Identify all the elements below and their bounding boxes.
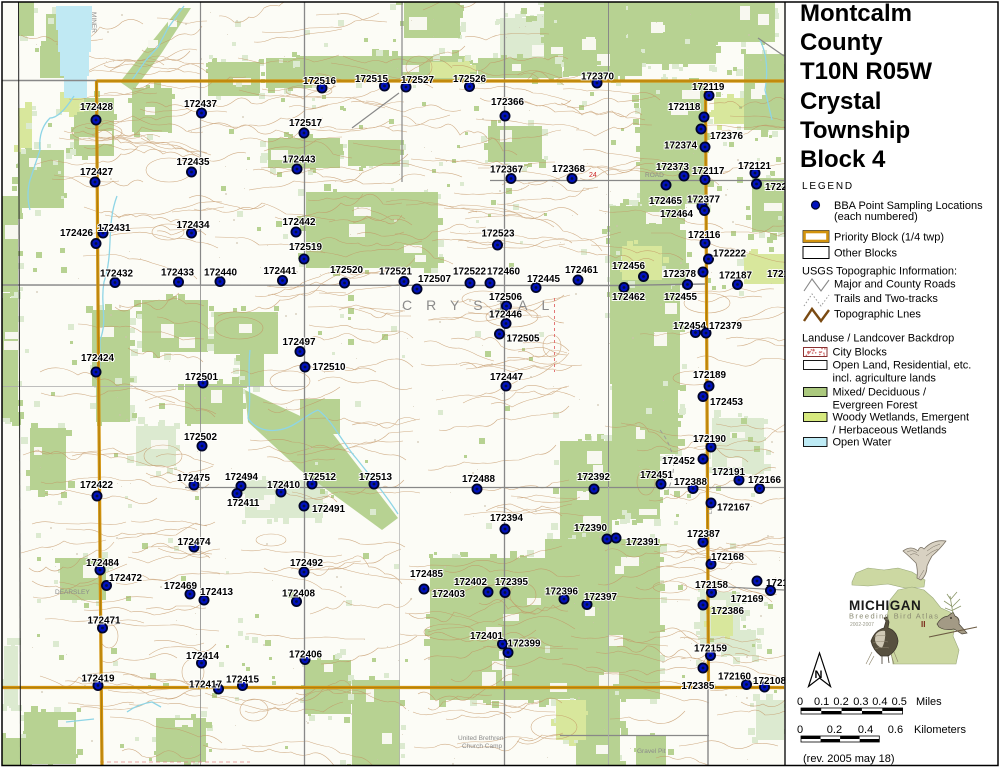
svg-text:172373: 172373	[656, 162, 689, 173]
svg-text:0.5: 0.5	[892, 696, 907, 708]
svg-text:172515: 172515	[355, 74, 388, 85]
svg-text:172385: 172385	[681, 681, 714, 692]
svg-text:172187: 172187	[719, 271, 752, 282]
svg-text:172462: 172462	[612, 292, 645, 303]
svg-text:172485: 172485	[410, 569, 443, 580]
svg-text:172505: 172505	[507, 334, 540, 345]
svg-text:Kilometers: Kilometers	[914, 724, 966, 736]
svg-text:172513: 172513	[359, 472, 392, 483]
svg-text:172492: 172492	[290, 558, 323, 569]
svg-text:172501: 172501	[185, 372, 218, 383]
svg-text:172377: 172377	[687, 195, 720, 206]
svg-text:172391: 172391	[626, 537, 659, 548]
svg-text:0.3: 0.3	[853, 696, 868, 708]
svg-text:Mixed/ Deciduous /: Mixed/ Deciduous /	[833, 387, 927, 399]
svg-text:USGS Topographic Information:: USGS Topographic Information:	[802, 266, 957, 278]
svg-text:172158: 172158	[695, 580, 728, 591]
svg-text:172526: 172526	[453, 74, 486, 85]
svg-text:172388: 172388	[674, 477, 707, 488]
svg-text:172437: 172437	[184, 99, 217, 110]
svg-text:172116: 172116	[688, 230, 721, 241]
svg-text:172368: 172368	[552, 164, 585, 175]
svg-text:United Brethren: United Brethren	[458, 735, 504, 742]
svg-text:172433: 172433	[161, 268, 194, 279]
svg-text:Miles: Miles	[916, 696, 942, 708]
svg-text:172516: 172516	[303, 76, 336, 87]
svg-text:172520: 172520	[330, 265, 363, 276]
svg-text:N: N	[815, 669, 823, 681]
svg-text:172414: 172414	[186, 651, 219, 662]
svg-text:Open Land, Residential, etc.: Open Land, Residential, etc.	[833, 360, 972, 372]
svg-text:172166: 172166	[748, 475, 781, 486]
svg-text:172469: 172469	[164, 581, 197, 592]
svg-text:172160: 172160	[718, 672, 751, 683]
svg-text:172422: 172422	[80, 480, 113, 491]
svg-text:172527: 172527	[401, 75, 434, 86]
svg-text:Priority Block (1/4 twp): Priority Block (1/4 twp)	[834, 232, 944, 244]
svg-text:Montcalm: Montcalm	[800, 0, 912, 27]
svg-text:172167: 172167	[717, 503, 750, 514]
svg-text:Woody Wetlands, Emergent: Woody Wetlands, Emergent	[833, 412, 970, 424]
svg-text:172522: 172522	[453, 267, 486, 278]
svg-text:172410: 172410	[267, 480, 300, 491]
svg-text:0: 0	[797, 724, 803, 736]
svg-text:172189: 172189	[693, 370, 726, 381]
svg-text:0.2: 0.2	[833, 696, 848, 708]
svg-text:172451: 172451	[640, 470, 673, 481]
svg-text:172386: 172386	[711, 606, 744, 617]
svg-text:172465: 172465	[649, 196, 682, 207]
svg-text:Landuse / Landcover Backdrop: Landuse / Landcover Backdrop	[802, 333, 954, 345]
svg-text:Topographic Lnes: Topographic Lnes	[834, 309, 921, 321]
svg-text:172399: 172399	[508, 639, 541, 650]
svg-text:0.2: 0.2	[827, 724, 842, 736]
svg-text:172434: 172434	[177, 220, 210, 231]
svg-text:172521: 172521	[379, 267, 412, 278]
svg-text:172517: 172517	[289, 118, 322, 129]
svg-text:172456: 172456	[612, 261, 645, 272]
svg-text:172395: 172395	[495, 577, 528, 588]
svg-text:172447: 172447	[490, 372, 523, 383]
svg-text:172403: 172403	[432, 589, 465, 600]
svg-text:172461: 172461	[565, 265, 598, 276]
svg-text:Other Blocks: Other Blocks	[834, 248, 897, 260]
svg-text:172464: 172464	[660, 209, 693, 220]
svg-text:0: 0	[797, 696, 803, 708]
svg-text:172494: 172494	[225, 472, 258, 483]
svg-text:DEARSLEY: DEARSLEY	[55, 589, 90, 596]
svg-text:172507: 172507	[418, 274, 451, 285]
svg-text:172442: 172442	[283, 217, 316, 228]
svg-text:172408: 172408	[282, 589, 315, 600]
svg-text:172191: 172191	[712, 467, 745, 478]
svg-text:172471: 172471	[88, 616, 121, 627]
svg-text:172121: 172121	[738, 161, 771, 172]
svg-text:incl. agriculture lands: incl. agriculture lands	[833, 373, 937, 385]
svg-text:Church Camp: Church Camp	[462, 743, 502, 750]
svg-text:172390: 172390	[574, 523, 607, 534]
svg-text:172406: 172406	[289, 650, 322, 661]
svg-text:Township: Township	[800, 117, 910, 144]
svg-text:Trails and Two-tracks: Trails and Two-tracks	[834, 293, 938, 305]
svg-text:172387: 172387	[687, 529, 720, 540]
svg-text:172396: 172396	[545, 587, 578, 598]
svg-text:172118: 172118	[668, 102, 701, 113]
svg-text:172445: 172445	[527, 274, 560, 285]
svg-text:172374: 172374	[664, 141, 697, 152]
svg-text:Open Water: Open Water	[833, 437, 892, 449]
svg-text:172484: 172484	[86, 558, 119, 569]
svg-text:Crystal: Crystal	[800, 88, 881, 115]
svg-text:172428: 172428	[80, 102, 113, 113]
svg-text:Gravel Pit: Gravel Pit	[637, 748, 666, 755]
svg-text:0.1: 0.1	[814, 696, 829, 708]
svg-text:172497: 172497	[283, 337, 316, 348]
svg-text:172169: 172169	[731, 594, 764, 605]
svg-text:172413: 172413	[200, 587, 233, 598]
svg-text:172502: 172502	[184, 432, 217, 443]
svg-text:172370: 172370	[581, 72, 614, 83]
svg-text:172402: 172402	[454, 577, 487, 588]
svg-text:172367: 172367	[490, 165, 523, 176]
svg-text:172446: 172446	[489, 310, 522, 321]
svg-text:0.4: 0.4	[872, 696, 887, 708]
svg-text:172491: 172491	[312, 504, 345, 515]
svg-text:Breeding Bird Atlas: Breeding Bird Atlas	[849, 612, 939, 621]
svg-text:172426: 172426	[60, 228, 93, 239]
svg-text:172460: 172460	[487, 267, 520, 278]
svg-text:172475: 172475	[177, 473, 210, 484]
svg-text:0.6: 0.6	[888, 724, 903, 736]
svg-text:172108: 172108	[753, 676, 786, 687]
svg-text:172117: 172117	[692, 166, 725, 177]
svg-text:Major and County Roads: Major and County Roads	[834, 279, 956, 291]
svg-text:0.4: 0.4	[858, 724, 873, 736]
svg-text:172519: 172519	[289, 242, 322, 253]
svg-text:172510: 172510	[313, 362, 346, 373]
svg-text:172523: 172523	[482, 229, 515, 240]
svg-text:172376: 172376	[710, 131, 743, 142]
svg-text:172431: 172431	[98, 223, 131, 234]
svg-text:172455: 172455	[664, 292, 697, 303]
svg-text:ROAD: ROAD	[645, 172, 664, 179]
svg-text:172366: 172366	[491, 97, 524, 108]
svg-text:172378: 172378	[663, 269, 696, 280]
svg-text:172222: 172222	[713, 249, 746, 260]
svg-text:CRYSTAL: CRYSTAL	[402, 297, 563, 313]
svg-text:172452: 172452	[662, 456, 695, 467]
svg-text:172411: 172411	[227, 498, 260, 509]
svg-text:(each numbered): (each numbered)	[834, 211, 918, 223]
svg-text:172417: 172417	[189, 680, 222, 691]
svg-text:T10N R05W: T10N R05W	[800, 58, 932, 85]
svg-text:172474: 172474	[178, 537, 211, 548]
svg-text:172512: 172512	[303, 472, 336, 483]
svg-text:172488: 172488	[462, 474, 495, 485]
svg-text:172401: 172401	[470, 631, 503, 642]
svg-text:172506: 172506	[489, 292, 522, 303]
svg-text:172427: 172427	[80, 167, 113, 178]
svg-text:172453: 172453	[710, 397, 743, 408]
svg-text:172190: 172190	[693, 434, 726, 445]
svg-text:172424: 172424	[81, 353, 114, 364]
svg-text:(rev. 2005 may 18): (rev. 2005 may 18)	[803, 753, 895, 765]
svg-text:172419: 172419	[82, 674, 115, 685]
svg-text:Evergreen Forest: Evergreen Forest	[833, 400, 918, 412]
svg-text:172443: 172443	[283, 155, 316, 166]
svg-text:172119: 172119	[692, 82, 725, 93]
svg-text:LEGEND: LEGEND	[802, 181, 854, 192]
svg-text:172394: 172394	[490, 513, 523, 524]
svg-text:Block 4: Block 4	[800, 146, 886, 173]
svg-text:172432: 172432	[100, 269, 133, 280]
svg-text:172397: 172397	[584, 592, 617, 603]
svg-text:172392: 172392	[577, 472, 610, 483]
svg-text:172472: 172472	[109, 573, 142, 584]
svg-text:24: 24	[589, 172, 597, 179]
svg-text:County: County	[800, 29, 883, 56]
svg-text:172379: 172379	[709, 321, 742, 332]
svg-text:2002-2007: 2002-2007	[850, 622, 874, 628]
svg-text:172435: 172435	[177, 157, 210, 168]
svg-text:172168: 172168	[711, 552, 744, 563]
svg-text:City Blocks: City Blocks	[833, 347, 888, 359]
svg-text:172440: 172440	[204, 268, 237, 279]
svg-text:172159: 172159	[694, 644, 727, 655]
svg-text:172415: 172415	[226, 675, 259, 686]
svg-text:MINER: MINER	[90, 12, 97, 33]
svg-text:172441: 172441	[264, 266, 297, 277]
svg-text:/ Herbaceous Wetlands: / Herbaceous Wetlands	[833, 425, 948, 437]
svg-text:II: II	[921, 620, 925, 629]
